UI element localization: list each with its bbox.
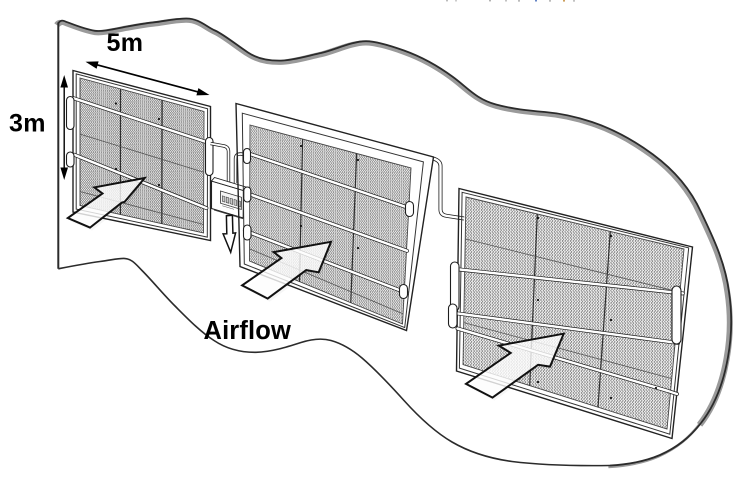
svg-text:3m: 3m: [9, 110, 46, 138]
svg-text:5m: 5m: [107, 29, 144, 57]
svg-text:Airflow: Airflow: [204, 317, 291, 345]
